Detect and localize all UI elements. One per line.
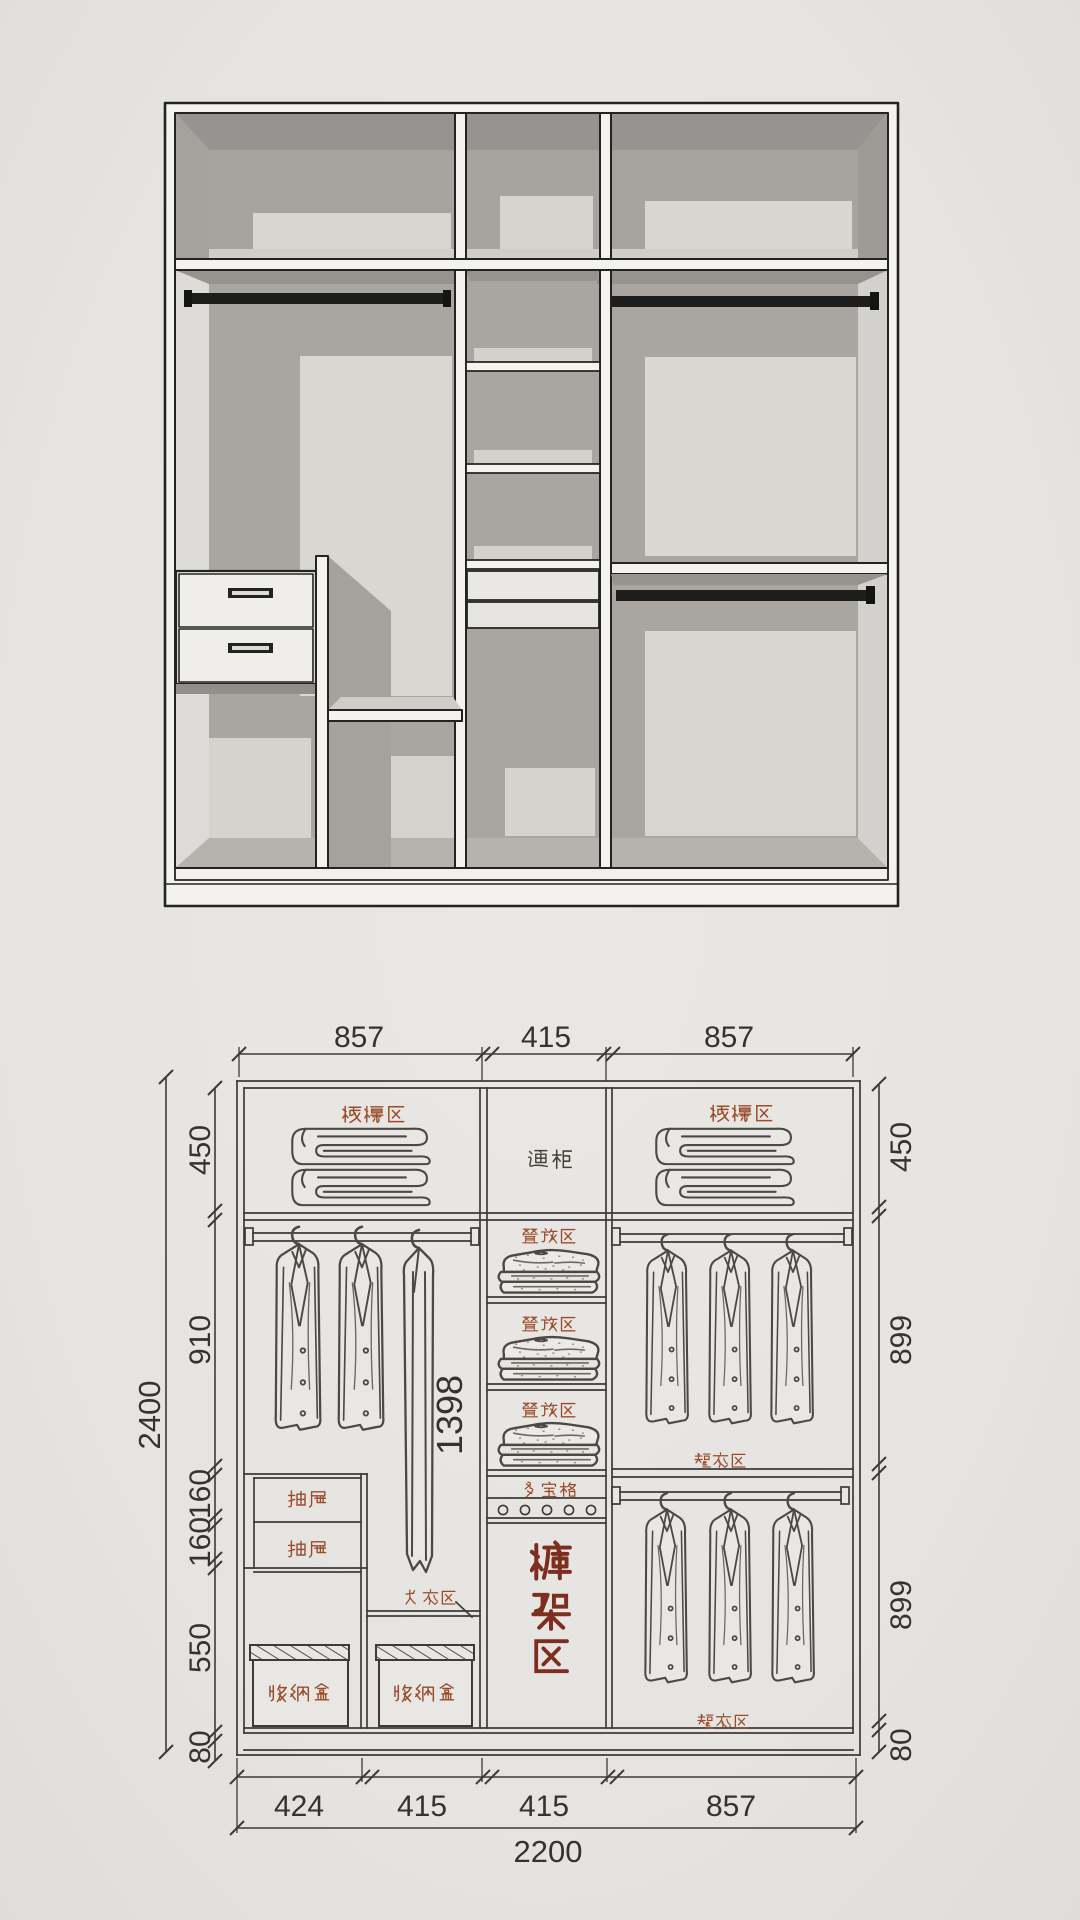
- svg-text:450: 450: [885, 1122, 918, 1172]
- svg-text:910: 910: [184, 1315, 217, 1365]
- svg-text:415: 415: [519, 1790, 569, 1823]
- svg-text:857: 857: [704, 1021, 754, 1054]
- svg-text:550: 550: [184, 1623, 217, 1673]
- svg-text:1398: 1398: [429, 1375, 470, 1455]
- svg-text:80: 80: [885, 1728, 918, 1761]
- svg-text:424: 424: [274, 1790, 324, 1823]
- svg-text:899: 899: [885, 1315, 918, 1365]
- svg-text:857: 857: [706, 1790, 756, 1823]
- svg-text:415: 415: [397, 1790, 447, 1823]
- svg-text:415: 415: [521, 1021, 571, 1054]
- svg-text:160: 160: [184, 1517, 217, 1567]
- svg-text:80: 80: [184, 1730, 217, 1763]
- svg-text:857: 857: [334, 1021, 384, 1054]
- svg-text:160: 160: [184, 1469, 217, 1519]
- svg-text:450: 450: [184, 1125, 217, 1175]
- svg-text:2400: 2400: [132, 1381, 167, 1450]
- svg-text:2200: 2200: [514, 1834, 583, 1869]
- svg-text:899: 899: [885, 1580, 918, 1630]
